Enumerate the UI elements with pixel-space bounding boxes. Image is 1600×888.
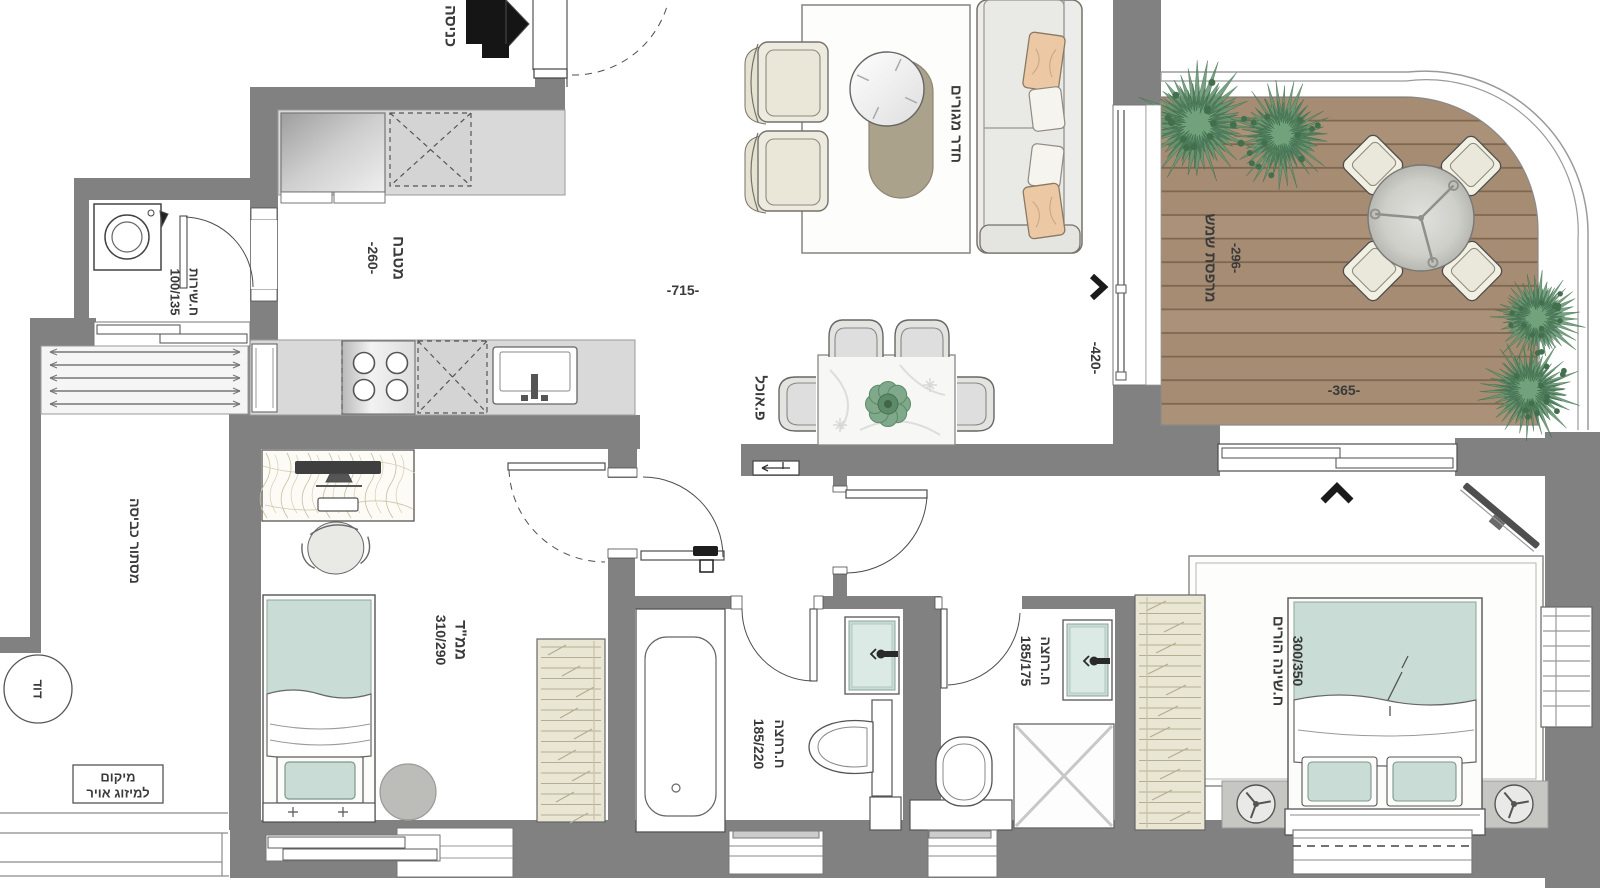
svg-text:-420-: -420-: [1088, 342, 1104, 375]
svg-text:חדר מגורים: חדר מגורים: [948, 85, 965, 163]
svg-text:מרפסת שמש: מרפסת שמש: [1202, 213, 1219, 302]
svg-text:300/350: 300/350: [1290, 636, 1306, 687]
svg-text:310/290: 310/290: [433, 615, 449, 666]
svg-text:185/175: 185/175: [1018, 636, 1034, 687]
svg-text:מיקום: מיקום: [100, 770, 135, 785]
svg-text:-365-: -365-: [1328, 382, 1361, 398]
svg-text:ממ"ד: ממ"ד: [452, 620, 469, 660]
svg-text:ח.שינה הורים: ח.שינה הורים: [1270, 616, 1287, 706]
svg-text:ח.רחצה: ח.רחצה: [772, 719, 788, 768]
svg-text:185/220: 185/220: [751, 719, 767, 770]
svg-text:-260-: -260-: [365, 242, 381, 275]
svg-text:ח.רחצה: ח.רחצה: [1038, 636, 1054, 685]
svg-text:כניסה: כניסה: [442, 5, 459, 47]
svg-text:למיזוג אויר: למיזוג אויר: [86, 786, 149, 801]
svg-text:מטבח: מטבח: [390, 236, 407, 280]
svg-text:-715-: -715-: [667, 282, 700, 298]
svg-text:-296-: -296-: [1229, 243, 1244, 273]
svg-text:פ.אוכל: פ.אוכל: [752, 375, 769, 420]
svg-text:דוד: דוד: [31, 679, 46, 698]
svg-text:ח.שירות: ח.שירות: [187, 268, 202, 316]
svg-text:100/135: 100/135: [168, 269, 183, 316]
svg-text:מסתור כביסה: מסתור כביסה: [127, 498, 143, 584]
